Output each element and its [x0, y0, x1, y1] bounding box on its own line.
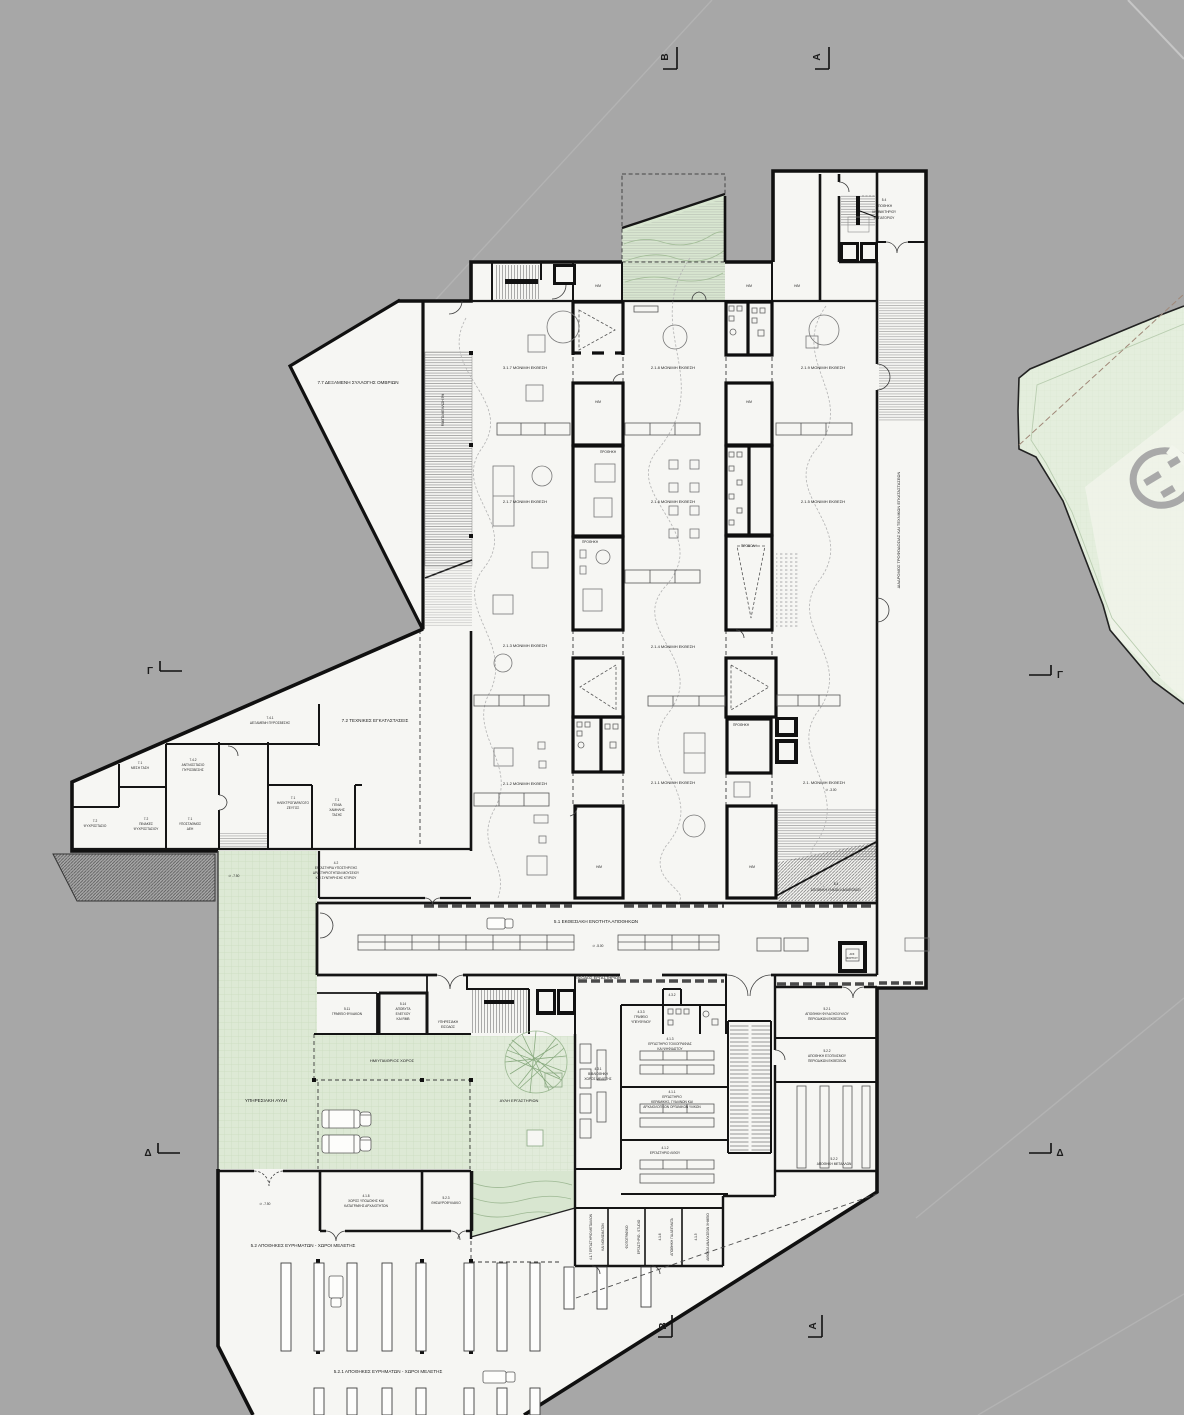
svg-text:∅ -7.50: ∅ -7.50 — [229, 874, 240, 878]
svg-text:ΠΡΟΘΗΚΗ: ΠΡΟΘΗΚΗ — [582, 540, 599, 544]
svg-text:ΕΙΣΟΔΟΣ ΕΡΓΑΣΤΗΡΙΩΝ: ΕΙΣΟΔΟΣ ΕΡΓΑΣΤΗΡΙΩΝ — [575, 975, 621, 980]
svg-text:7.7 ΔΕΞΑΜΕΝΗ ΣΥΛΛΟΓΗΣ ΟΜΒΡΙΩΝ: 7.7 ΔΕΞΑΜΕΝΗ ΣΥΛΛΟΓΗΣ ΟΜΒΡΙΩΝ — [317, 380, 398, 385]
svg-text:ΠΡΟΒΟΛΗ: ΠΡΟΒΟΛΗ — [741, 544, 758, 548]
svg-text:ΜΕΣΗ ΤΑΣΗ: ΜΕΣΗ ΤΑΣΗ — [131, 766, 150, 770]
svg-text:5.1 ΕΚΘΕΣΙΑΚΗ ΕΝΟΤΗΤΑ ΑΠΟΘΗΚΩΝ: 5.1 ΕΚΘΕΣΙΑΚΗ ΕΝΟΤΗΤΑ ΑΠΟΘΗΚΩΝ — [554, 919, 638, 924]
svg-text:2.1.5 ΜΟΝΙΜΗ ΕΚΘΕΣΗ: 2.1.5 ΜΟΝΙΜΗ ΕΚΘΕΣΗ — [801, 499, 845, 504]
svg-text:ΥΠΟΣΤΑΘΜΟΣ: ΥΠΟΣΤΑΘΜΟΣ — [179, 822, 201, 826]
svg-text:ΠΡΟΘΗΚΗ: ΠΡΟΘΗΚΗ — [600, 450, 617, 454]
svg-text:ΑΠΟΘΗΚΗ ΓΙΑ ΔΕΙΓΜΑΤΑ: ΑΠΟΘΗΚΗ ΓΙΑ ΔΕΙΓΜΑΤΑ — [670, 1217, 674, 1255]
svg-text:Η/Μ: Η/Μ — [794, 284, 800, 288]
svg-text:ΠΕΡΙΟΔΙΚΩΝ ΕΚΘΕΣΕΩΝ: ΠΕΡΙΟΔΙΚΩΝ ΕΚΘΕΣΕΩΝ — [808, 1059, 847, 1063]
svg-text:ΧΩΡΟΣ ΥΠΟΔΟΧΗΣ ΚΑΙ: ΧΩΡΟΣ ΥΠΟΔΟΧΗΣ ΚΑΙ — [348, 1199, 384, 1203]
svg-text:ΥΠΕΥΘΥΝΟΥ: ΥΠΕΥΘΥΝΟΥ — [631, 1020, 652, 1024]
svg-text:ΧΩΡΟΣ ΜΕΛΕΤΗΣ: ΧΩΡΟΣ ΜΕΛΕΤΗΣ — [584, 1077, 611, 1081]
svg-text:ΔΕΞΑΜΕΝΗ ΠΥΡΟΣΒΕΣΗΣ: ΔΕΞΑΜΕΝΗ ΠΥΡΟΣΒΕΣΗΣ — [250, 721, 290, 725]
svg-text:ΕΣΤΙΑΤΟΡΙΟΥ: ΕΣΤΙΑΤΟΡΙΟΥ — [874, 216, 896, 220]
svg-text:5.2.2: 5.2.2 — [830, 1157, 837, 1161]
svg-text:7.2 ΤΕΧΝΙΚΕΣ ΕΓΚΑΤΑΣΤΑΣΕΙΣ: 7.2 ΤΕΧΝΙΚΕΣ ΕΓΚΑΤΑΣΤΑΣΕΙΣ — [342, 718, 409, 723]
svg-text:ΠΕΡΙΟΔΙΚΩΝ ΕΚΘΕΣΕΩΝ: ΠΕΡΙΟΔΙΚΩΝ ΕΚΘΕΣΕΩΝ — [808, 1017, 847, 1021]
svg-text:4.1.2: 4.1.2 — [661, 1146, 668, 1150]
svg-text:7.2: 7.2 — [93, 819, 98, 823]
svg-text:ΨΥΧΡΟΣΤΑΣΙΟΥ: ΨΥΧΡΟΣΤΑΣΙΟΥ — [134, 827, 160, 831]
svg-text:7.4.2: 7.4.2 — [189, 758, 196, 762]
svg-text:5.2 ΑΠΟΘΗΚΕΣ ΕΥΡΗΜΑΤΩΝ - ΧΩΡΟΙ: 5.2 ΑΠΟΘΗΚΕΣ ΕΥΡΗΜΑΤΩΝ - ΧΩΡΟΙ ΜΕΛΕΤΗΣ — [251, 1243, 356, 1248]
svg-text:Δ: Δ — [1056, 1148, 1063, 1159]
svg-text:ΓΡΑΦΕΙΟ: ΓΡΑΦΕΙΟ — [634, 1015, 648, 1019]
svg-text:4.2: 4.2 — [334, 861, 339, 865]
svg-text:ΑΙΘΟΥΣΑ ΑΝΑΛΥΣΕΩΝ ΧΗΜΕΙΟ: ΑΙΘΟΥΣΑ ΑΝΑΛΥΣΕΩΝ ΧΗΜΕΙΟ — [706, 1213, 710, 1261]
svg-text:4.1.8: 4.1.8 — [362, 1194, 369, 1198]
svg-text:2.1.7 ΜΟΝΙΜΗ ΕΚΘΕΣΗ: 2.1.7 ΜΟΝΙΜΗ ΕΚΘΕΣΗ — [503, 499, 547, 504]
svg-text:ΕΡΓΑΣΤΗΡΙΟ ΤΟΙΧΟΓΡΑΦΙΑΣ: ΕΡΓΑΣΤΗΡΙΟ ΤΟΙΧΟΓΡΑΦΙΑΣ — [648, 1042, 691, 1046]
svg-text:ΕΡΓΑΣΤΗΡΙΟ - STUDIO: ΕΡΓΑΣΤΗΡΙΟ - STUDIO — [637, 1219, 641, 1254]
svg-text:ΑΝΤΛΙΟΣΤΑΣΙΟ: ΑΝΤΛΙΟΣΤΑΣΙΟ — [182, 763, 205, 767]
svg-text:4.1.3: 4.1.3 — [666, 1037, 673, 1041]
svg-text:2.1.9 ΜΟΝΙΜΗ ΕΚΘΕΣΗ: 2.1.9 ΜΟΝΙΜΗ ΕΚΘΕΣΗ — [801, 365, 845, 370]
svg-text:ΛΗΜΝΙΚΤΗΡΙΟΥ: ΛΗΜΝΙΚΤΗΡΙΟΥ — [872, 210, 897, 214]
svg-text:5.4: 5.4 — [834, 882, 839, 886]
svg-text:ΠΡΟΘΗΚΗ: ΠΡΟΘΗΚΗ — [733, 723, 750, 727]
svg-text:ΚΑΤΑΓΡΑΦΗΣ ΑΡΧΑΙΟΤΗΤΩΝ: ΚΑΤΑΓΡΑΦΗΣ ΑΡΧΑΙΟΤΗΤΩΝ — [344, 1204, 388, 1208]
svg-text:ΑΠΟΘΗΚΗ ΥΛΙΚΩΝ ΚΑΘΑΡΙΣΜΟΥ: ΑΠΟΘΗΚΗ ΥΛΙΚΩΝ ΚΑΘΑΡΙΣΜΟΥ — [811, 888, 862, 892]
svg-text:Η/Μ: Η/Μ — [595, 284, 601, 288]
svg-text:7.1: 7.1 — [138, 761, 143, 765]
svg-text:ΦΩΤΟΓΡΑΦΙΚΟ: ΦΩΤΟΓΡΑΦΙΚΟ — [625, 1225, 629, 1248]
svg-text:3.1.7 ΜΟΝΙΜΗ ΕΚΘΕΣΗ: 3.1.7 ΜΟΝΙΜΗ ΕΚΘΕΣΗ — [503, 365, 547, 370]
svg-text:ΓΡΑΦΕΙΟ ΦΥΛΑΚΩΝ: ΓΡΑΦΕΙΟ ΦΥΛΑΚΩΝ — [332, 1012, 363, 1016]
svg-text:ΔΕΗ: ΔΕΗ — [187, 827, 194, 831]
svg-text:Δ: Δ — [144, 1148, 151, 1159]
svg-text:ΚΕΡΑΜΙΚΗΣ, ΓΥΑΛΙΝΩΝ ΚΑΙ: ΚΕΡΑΜΙΚΗΣ, ΓΥΑΛΙΝΩΝ ΚΑΙ — [651, 1100, 693, 1104]
svg-text:2.1.1 ΜΟΝΙΜΗ ΕΚΘΕΣΗ: 2.1.1 ΜΟΝΙΜΗ ΕΚΘΕΣΗ — [651, 780, 695, 785]
svg-text:ΑΠΟΒΥΤΑ: ΑΠΟΒΥΤΑ — [396, 1007, 412, 1011]
svg-text:ΠΥΡΟΣΒΕΣΗΣ: ΠΥΡΟΣΒΕΣΗΣ — [182, 768, 204, 772]
svg-text:7.1: 7.1 — [188, 817, 193, 821]
svg-text:ΕΡΓΑΣΤΗΡΙΟ ΛΙΘΟΥ: ΕΡΓΑΣΤΗΡΙΟ ΛΙΘΟΥ — [650, 1151, 681, 1155]
svg-text:7.2: 7.2 — [144, 817, 149, 821]
svg-text:ΑΠΟΘΗΚΗ ΦΥΛΑΞΗΣ/ΧΥΛΟΥ: ΑΠΟΘΗΚΗ ΦΥΛΑΞΗΣ/ΧΥΛΟΥ — [805, 1012, 849, 1016]
svg-text:ΔΙΑΔΡΟΜΟΣ ΤΡΟΦΟΔΟΣΙΑΣ ΚΑΙ ΤΕΧΝ: ΔΙΑΔΡΟΜΟΣ ΤΡΟΦΟΔΟΣΙΑΣ ΚΑΙ ΤΕΧΝΙΚΩΝ ΕΓΚΑΤ… — [896, 471, 901, 588]
svg-text:ΥΠΗΡΕΣΙΑΚΗ ΑΥΛΗ: ΥΠΗΡΕΣΙΑΚΗ ΑΥΛΗ — [245, 1098, 287, 1103]
svg-text:4.3.2: 4.3.2 — [668, 993, 675, 997]
svg-text:Β: Β — [658, 1322, 669, 1329]
svg-text:5.2.3: 5.2.3 — [442, 1196, 449, 1200]
svg-text:ΚΑΙ ΣΥΝΤΗΡΗΣΗΣ ΚΤΙΡΙΟΥ: ΚΑΙ ΣΥΝΤΗΡΗΣΗΣ ΚΤΙΡΙΟΥ — [316, 876, 358, 880]
svg-text:4.1.7 ΕΡΓΑΣΤΗΡΙΟ ΜΕΤΑΛΛΩΝ: 4.1.7 ΕΡΓΑΣΤΗΡΙΟ ΜΕΤΑΛΛΩΝ — [589, 1213, 593, 1260]
svg-text:ΘΗΣΑΥΡΟΦΥΛΑΚΙΟ: ΘΗΣΑΥΡΟΦΥΛΑΚΙΟ — [431, 1201, 461, 1205]
svg-text:Α: Α — [812, 53, 823, 60]
svg-text:∅ -3.00: ∅ -3.00 — [826, 788, 837, 792]
svg-text:ΚΑΙ ΨΗΦΙΔΩΤΟΥ: ΚΑΙ ΨΗΦΙΔΩΤΟΥ — [657, 1047, 683, 1051]
svg-text:4.1.5: 4.1.5 — [694, 1233, 698, 1240]
svg-text:5.11: 5.11 — [344, 1007, 350, 1011]
svg-text:4.1.6: 4.1.6 — [658, 1233, 662, 1240]
svg-text:ΕΛΕΓΧΟΥ: ΕΛΕΓΧΟΥ — [396, 1012, 412, 1016]
svg-text:ΑΠΟΘΗΚΗ: ΑΠΟΘΗΚΗ — [876, 204, 893, 208]
svg-text:4.3.1: 4.3.1 — [594, 1067, 601, 1071]
svg-text:2.1.3 ΜΟΝΙΜΗ ΕΚΘΕΣΗ: 2.1.3 ΜΟΝΙΜΗ ΕΚΘΕΣΗ — [503, 643, 547, 648]
svg-text:ΤΑΣΗΣ: ΤΑΣΗΣ — [332, 813, 342, 817]
svg-text:7.1: 7.1 — [291, 796, 296, 800]
svg-text:Η/Μ: Η/Μ — [746, 400, 752, 404]
svg-text:ΖΕΥΓΟΣ: ΖΕΥΓΟΣ — [287, 806, 299, 810]
svg-text:ΗΜΙΥΠΑΙΘΡΙΟΣ ΧΩΡΟΣ: ΗΜΙΥΠΑΙΘΡΙΟΣ ΧΩΡΟΣ — [370, 1058, 415, 1063]
svg-text:2.1.4 ΜΟΝΙΜΗ ΕΚΘΕΣΗ: 2.1.4 ΜΟΝΙΜΗ ΕΚΘΕΣΗ — [651, 644, 695, 649]
svg-text:Γ: Γ — [1057, 670, 1063, 681]
svg-text:ΓΕΝΙΑ: ΓΕΝΙΑ — [332, 803, 342, 807]
svg-text:7.1: 7.1 — [335, 798, 340, 802]
svg-text:2.1. ΜΟΝΙΜΗ ΕΚΘΕΣΗ: 2.1. ΜΟΝΙΜΗ ΕΚΘΕΣΗ — [803, 780, 845, 785]
svg-text:ΚΑΙ ΝΟΜΙΣΜΑΤΩΝ: ΚΑΙ ΝΟΜΙΣΜΑΤΩΝ — [601, 1223, 605, 1251]
svg-text:ΥΠΗΡΕΣΙΑΚΗ: ΥΠΗΡΕΣΙΑΚΗ — [438, 1020, 459, 1024]
svg-text:ΚΑΙ RMB: ΚΑΙ RMB — [396, 1017, 409, 1021]
svg-text:ΑΥΛΗ ΕΡΓΑΣΤΗΡΙΩΝ: ΑΥΛΗ ΕΡΓΑΣΤΗΡΙΩΝ — [500, 1098, 539, 1103]
svg-text:ΔΡΑΣΤΗΡΙΟΤΗΤΩΝ ΜΟΥΣΕΙΟΥ: ΔΡΑΣΤΗΡΙΟΤΗΤΩΝ ΜΟΥΣΕΙΟΥ — [313, 871, 360, 875]
svg-text:ΑΣΣ: ΑΣΣ — [850, 952, 855, 956]
svg-text:ΕΡΓΑΣΤΗΡΙΟ: ΕΡΓΑΣΤΗΡΙΟ — [662, 1095, 682, 1099]
svg-text:ΨΥΧΡΟΣΤΑΣΙΟ: ΨΥΧΡΟΣΤΑΣΙΟ — [84, 824, 107, 828]
svg-text:5.2.1 ΑΠΟΘΗΚΕΣ ΕΥΡΗΜΑΤΩΝ - ΧΩΡ: 5.2.1 ΑΠΟΘΗΚΕΣ ΕΥΡΗΜΑΤΩΝ - ΧΩΡΟΙ ΜΕΛΕΤΗΣ — [334, 1369, 443, 1374]
svg-text:4.1.1: 4.1.1 — [668, 1090, 675, 1094]
svg-text:∅ -5.00: ∅ -5.00 — [593, 944, 604, 948]
svg-text:5.2.1: 5.2.1 — [823, 1007, 830, 1011]
svg-text:2.1.8 ΜΟΝΙΜΗ ΕΚΘΕΣΗ: 2.1.8 ΜΟΝΙΜΗ ΕΚΘΕΣΗ — [651, 365, 695, 370]
svg-text:Γ: Γ — [147, 666, 153, 677]
svg-text:ΗΛΕΚΤΡΟΠΑΡΑΓΩΓΟ: ΗΛΕΚΤΡΟΠΑΡΑΓΩΓΟ — [277, 801, 310, 805]
svg-text:∅ -7.50: ∅ -7.50 — [260, 1202, 271, 1206]
svg-text:Η/Μ: Η/Μ — [595, 400, 601, 404]
svg-text:5.2.2: 5.2.2 — [823, 1049, 830, 1053]
svg-text:ΧΑΜΗΛΗΣ: ΧΑΜΗΛΗΣ — [329, 808, 345, 812]
svg-text:Α: Α — [808, 1322, 819, 1329]
svg-text:ΠΙΝΑΚΕΣ: ΠΙΝΑΚΕΣ — [139, 822, 153, 826]
svg-text:Η/Μ: Η/Μ — [746, 284, 752, 288]
svg-text:7.4.1: 7.4.1 — [266, 716, 273, 720]
svg-text:Η/Μ: Η/Μ — [596, 865, 602, 869]
svg-text:ΑΠΟΘΗΚΗ ΕΞΟΠΛΙΣΜΟΥ: ΑΠΟΘΗΚΗ ΕΞΟΠΛΙΣΜΟΥ — [808, 1054, 847, 1058]
svg-text:ΕΡΓΑΣΤΗΡΙΑ ΥΠΟΣΤΗΡΙΞΗΣ: ΕΡΓΑΣΤΗΡΙΑ ΥΠΟΣΤΗΡΙΞΗΣ — [315, 866, 357, 870]
svg-text:ΡΑΜΠΑ ΜΕ ΚΛΙΣΗ 5%: ΡΑΜΠΑ ΜΕ ΚΛΙΣΗ 5% — [441, 394, 445, 427]
svg-text:ΑΡΧΑΙΟΛΟΓΙΚΩΝ ΟΡΓΑΝΙΚΩΝ ΥΛΙΚΩΝ: ΑΡΧΑΙΟΛΟΓΙΚΩΝ ΟΡΓΑΝΙΚΩΝ ΥΛΙΚΩΝ — [643, 1105, 701, 1109]
svg-text:Β: Β — [660, 53, 671, 60]
svg-text:2.1.6 ΜΟΝΙΜΗ ΕΚΘΕΣΗ: 2.1.6 ΜΟΝΙΜΗ ΕΚΘΕΣΗ — [651, 499, 695, 504]
svg-text:5.14: 5.14 — [400, 1002, 406, 1006]
svg-text:ΦΟΡΤΙΟΥ: ΦΟΡΤΙΟΥ — [846, 956, 858, 960]
svg-text:ΑΠΟΘΗΚΗ ΜΕΤΑΛΛΩΝ: ΑΠΟΘΗΚΗ ΜΕΤΑΛΛΩΝ — [817, 1162, 852, 1166]
svg-text:5.4: 5.4 — [882, 198, 887, 202]
svg-text:ΒΙΒΛΙΟΘΗΚΗ: ΒΙΒΛΙΟΘΗΚΗ — [588, 1072, 609, 1076]
svg-text:2.1.2 ΜΟΝΙΜΗ ΕΚΘΕΣΗ: 2.1.2 ΜΟΝΙΜΗ ΕΚΘΕΣΗ — [503, 781, 547, 786]
svg-text:ΕΙΣΟΔΟΣ: ΕΙΣΟΔΟΣ — [441, 1025, 455, 1029]
svg-text:4.3.3: 4.3.3 — [637, 1010, 644, 1014]
svg-text:Η/Μ: Η/Μ — [749, 865, 755, 869]
